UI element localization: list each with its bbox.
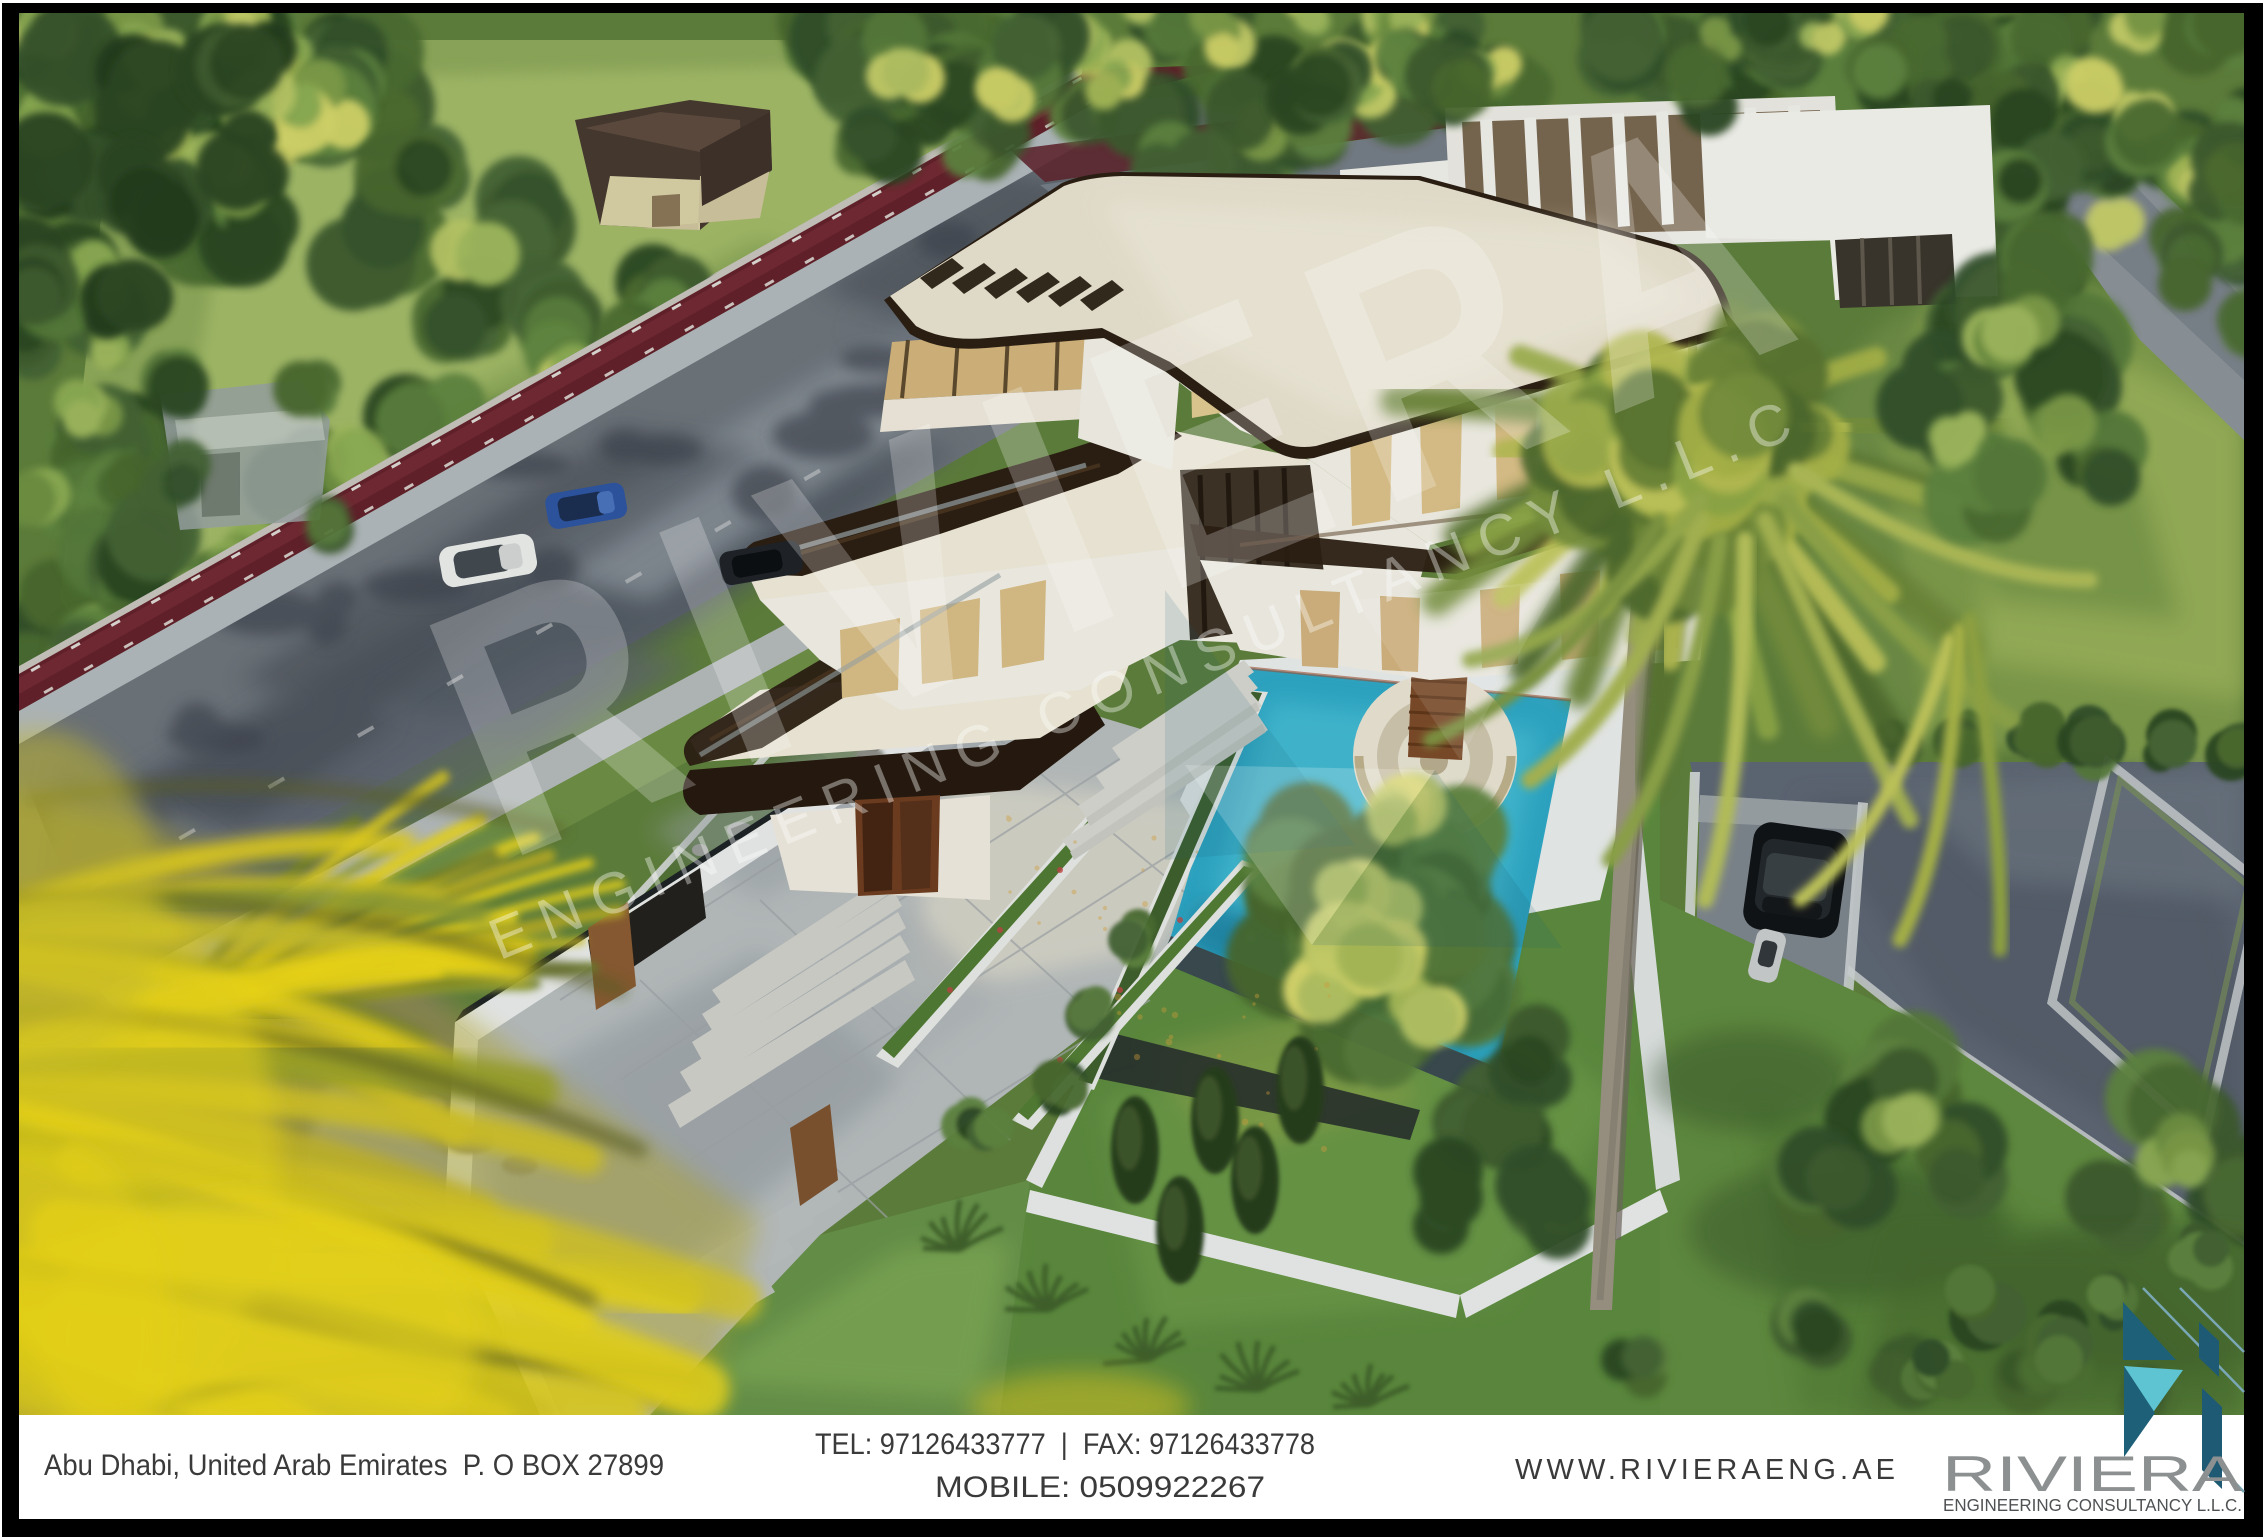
svg-text:ENGINEERING CONSULTANCY L.L.C.: ENGINEERING CONSULTANCY L.L.C. bbox=[1943, 1495, 2242, 1515]
svg-text:TEL: 97126433777 | FAX: 9712: TEL: 97126433777 | FAX: 97126433778 bbox=[815, 1428, 1315, 1461]
svg-text:RIVIERA: RIVIERA bbox=[1942, 1446, 2243, 1502]
svg-text:MOBILE: 0509922267: MOBILE: 0509922267 bbox=[935, 1471, 1265, 1504]
svg-text:Abu Dhabi, United Arab Emirate: Abu Dhabi, United Arab Emirates P. O BOX… bbox=[44, 1449, 664, 1482]
